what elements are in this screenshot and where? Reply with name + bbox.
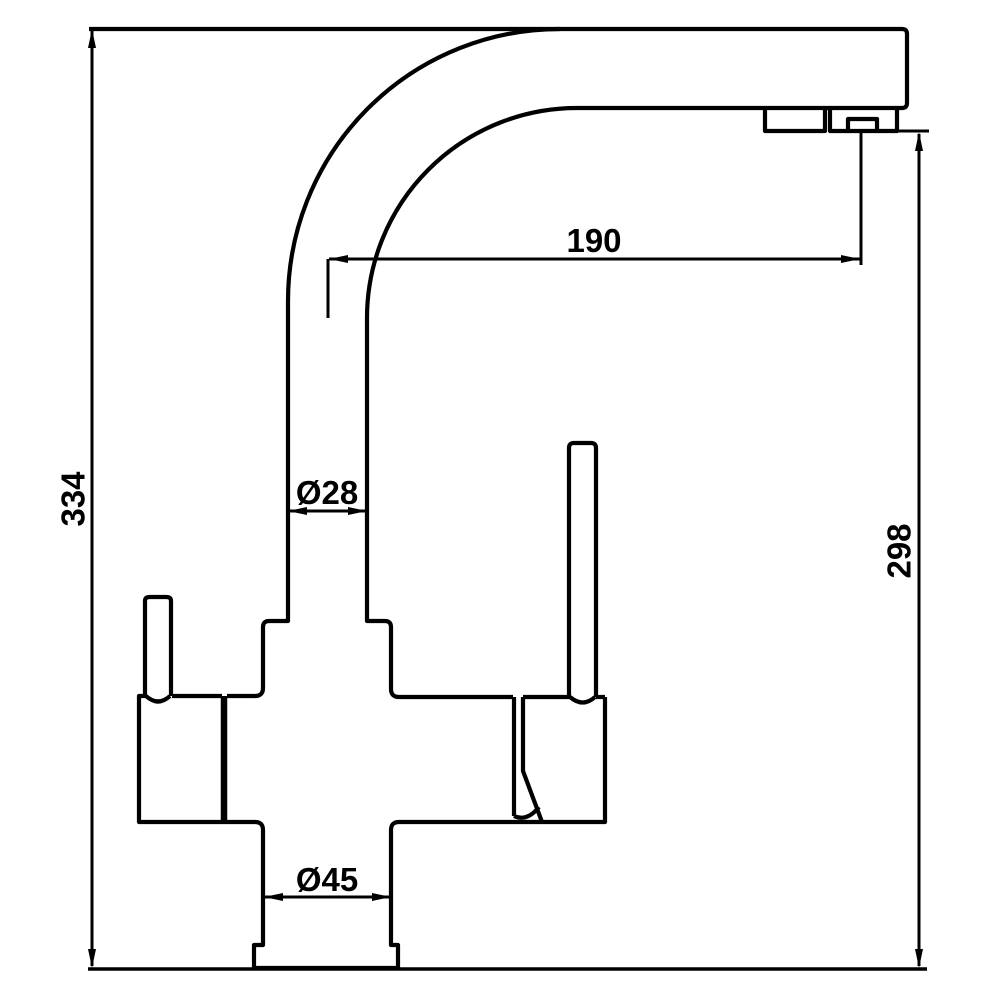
arrowhead-298-bottom <box>915 949 923 968</box>
right-handle-joint-arc <box>514 807 539 818</box>
arrowhead-334-bottom <box>88 949 96 968</box>
arrowhead-190-left <box>329 255 348 263</box>
dimension-base-diameter: Ø45 <box>264 861 391 901</box>
dimension-overall-height: 334 <box>55 29 96 968</box>
arrowhead-d45-right <box>372 893 391 901</box>
dimension-column-diameter: Ø28 <box>288 474 367 515</box>
drawing-canvas: 334 298 190 Ø28 <box>0 0 1000 1000</box>
left-handle-lever-base-arc <box>146 696 170 702</box>
dimension-spout-height: 298 <box>881 131 929 968</box>
right-handle-left-edge <box>523 697 542 822</box>
spout-aerator-block-left <box>765 108 825 131</box>
neck-outer-profile <box>227 29 560 696</box>
faucet-outline <box>89 29 907 968</box>
faucet-technical-drawing: 334 298 190 Ø28 <box>0 0 1000 1000</box>
dim-label-spout-height: 298 <box>881 523 918 578</box>
left-handle-body <box>139 696 222 822</box>
arrowhead-298-top <box>915 132 923 151</box>
right-handle-lever <box>569 443 596 697</box>
dim-label-overall-height: 334 <box>55 471 92 527</box>
dim-label-base-diameter: Ø45 <box>296 861 358 898</box>
left-handle-lever <box>145 597 171 696</box>
arrowhead-190-right <box>841 255 860 263</box>
dim-label-column-diameter: Ø28 <box>296 474 358 511</box>
dimension-spout-reach: 190 <box>328 131 861 318</box>
dim-label-spout-reach: 190 <box>566 222 621 259</box>
arrowhead-d45-left <box>264 893 283 901</box>
right-handle-lever-base-arc <box>570 697 595 703</box>
body-stem-and-base-plate <box>222 697 605 968</box>
arrowhead-334-top <box>88 29 96 48</box>
